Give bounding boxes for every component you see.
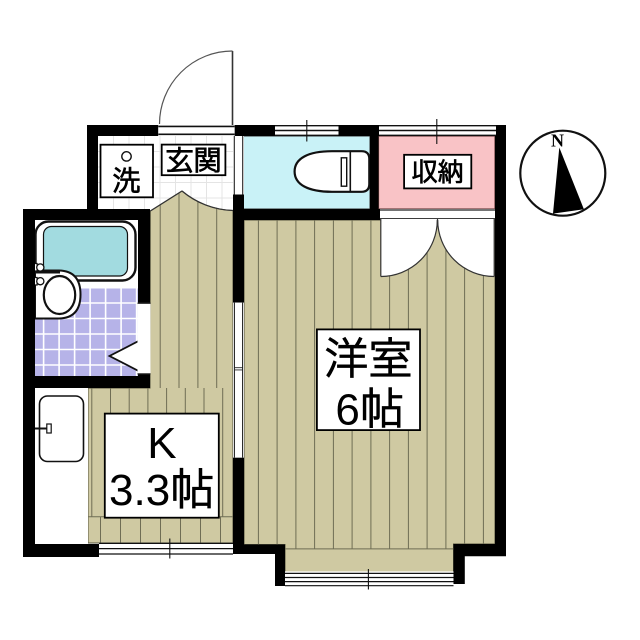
svg-text:3.3: 3.3	[109, 466, 170, 515]
svg-text:K: K	[147, 419, 176, 468]
svg-text:N: N	[551, 131, 564, 151]
svg-text:6: 6	[335, 385, 359, 434]
